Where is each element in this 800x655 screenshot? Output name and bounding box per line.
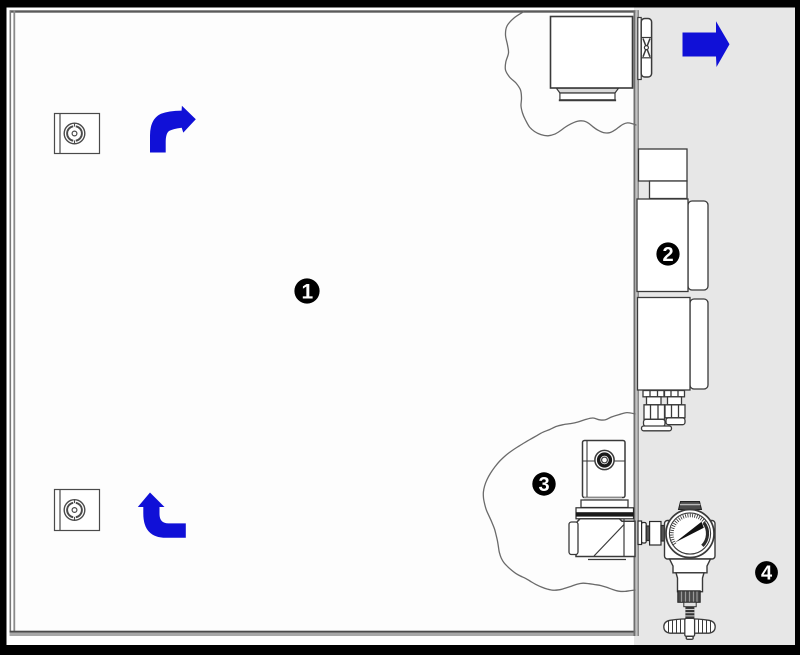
svg-text:2: 2	[662, 244, 673, 266]
svg-text:3: 3	[538, 474, 549, 496]
svg-text:1: 1	[301, 280, 313, 303]
svg-text:4: 4	[761, 563, 773, 585]
